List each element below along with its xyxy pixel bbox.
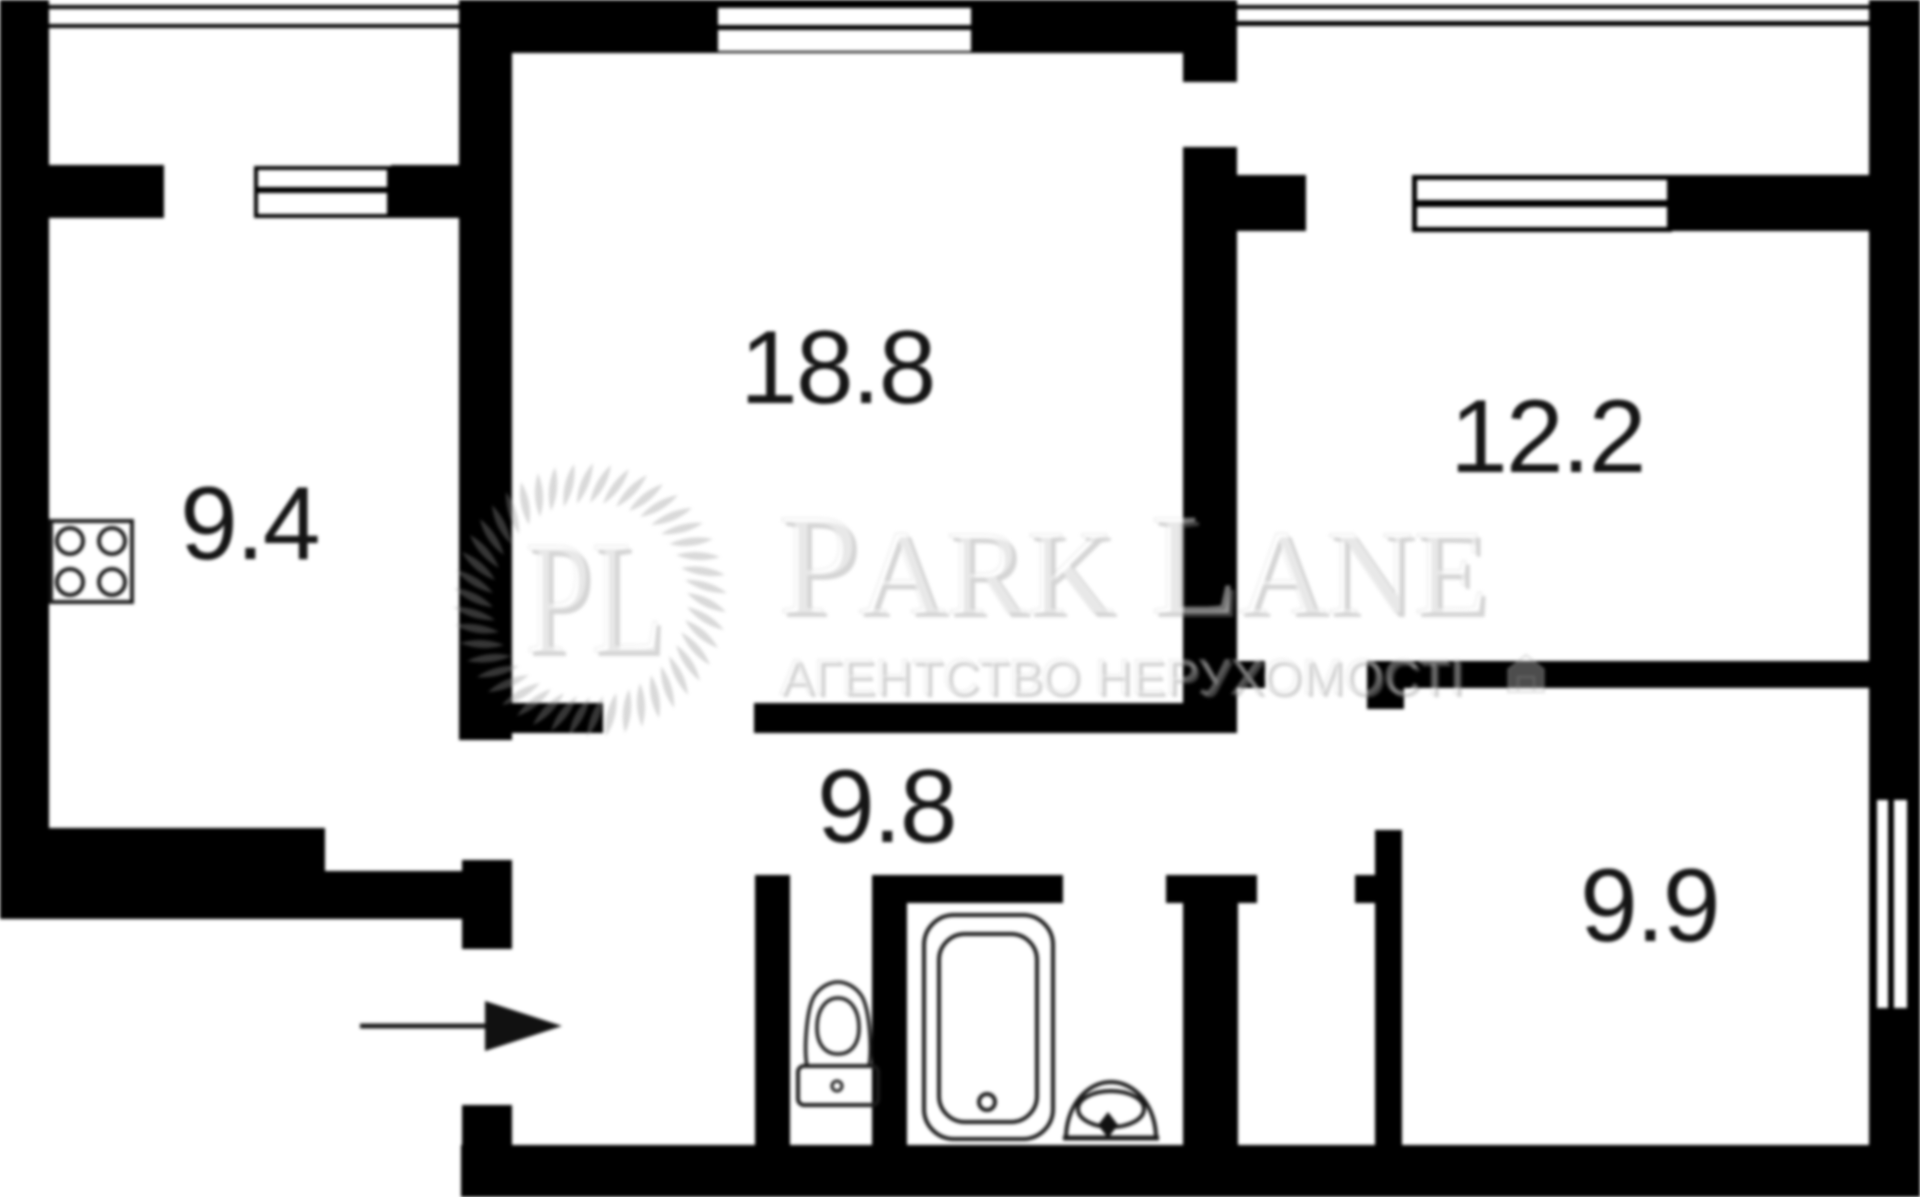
svg-text:PARK LANE: PARK LANE: [778, 485, 1488, 645]
svg-text:PL: PL: [525, 508, 664, 688]
svg-text:АГЕНТСТВО НЕРУХОМОСТІ: АГЕНТСТВО НЕРУХОМОСТІ: [780, 649, 1464, 705]
